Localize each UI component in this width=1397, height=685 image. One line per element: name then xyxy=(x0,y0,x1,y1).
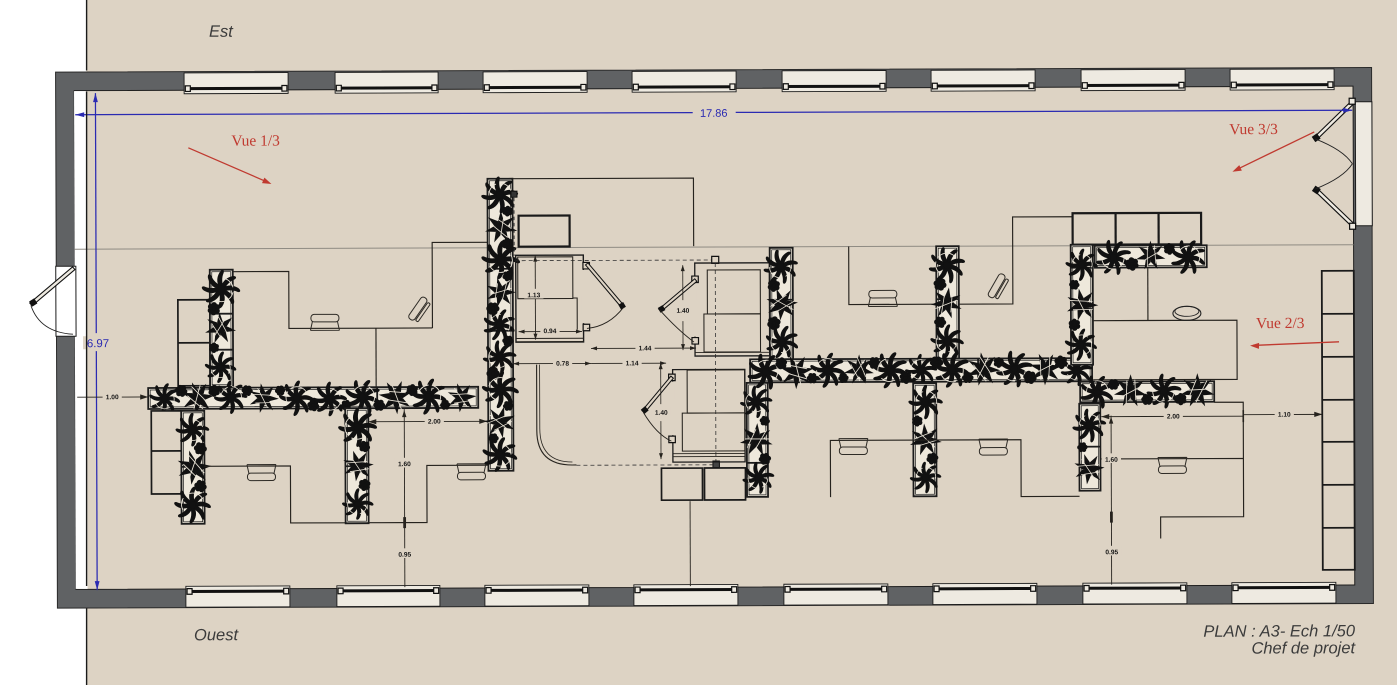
svg-text:1.60: 1.60 xyxy=(1105,457,1118,464)
svg-text:0.78: 0.78 xyxy=(556,361,569,368)
svg-text:0.94: 0.94 xyxy=(544,328,557,335)
svg-text:1.40: 1.40 xyxy=(655,410,668,417)
svg-text:1.14: 1.14 xyxy=(626,360,639,367)
svg-text:2.00: 2.00 xyxy=(1167,413,1180,420)
svg-text:Vue 1/3: Vue 1/3 xyxy=(231,133,280,150)
svg-text:2.00: 2.00 xyxy=(428,419,441,426)
svg-text:Chef de projet: Chef de projet xyxy=(1251,639,1356,657)
svg-text:Vue 2/3: Vue 2/3 xyxy=(1256,315,1305,332)
svg-text:17.86: 17.86 xyxy=(700,108,728,120)
svg-text:6.97: 6.97 xyxy=(87,338,109,350)
svg-text:1.00: 1.00 xyxy=(106,394,119,401)
svg-text:Vue 3/3: Vue 3/3 xyxy=(1229,121,1278,138)
svg-text:1.10: 1.10 xyxy=(1278,412,1291,419)
svg-text:1.13: 1.13 xyxy=(527,292,540,299)
svg-text:0.95: 0.95 xyxy=(398,552,411,559)
svg-text:PLAN : A3- Ech 1/50: PLAN : A3- Ech 1/50 xyxy=(1203,622,1356,641)
svg-text:1.44: 1.44 xyxy=(639,345,652,352)
svg-text:0.95: 0.95 xyxy=(1105,549,1118,556)
svg-text:Est: Est xyxy=(209,23,234,41)
svg-text:Ouest: Ouest xyxy=(194,626,239,644)
svg-text:1.40: 1.40 xyxy=(676,308,689,315)
svg-text:1.60: 1.60 xyxy=(398,461,411,468)
